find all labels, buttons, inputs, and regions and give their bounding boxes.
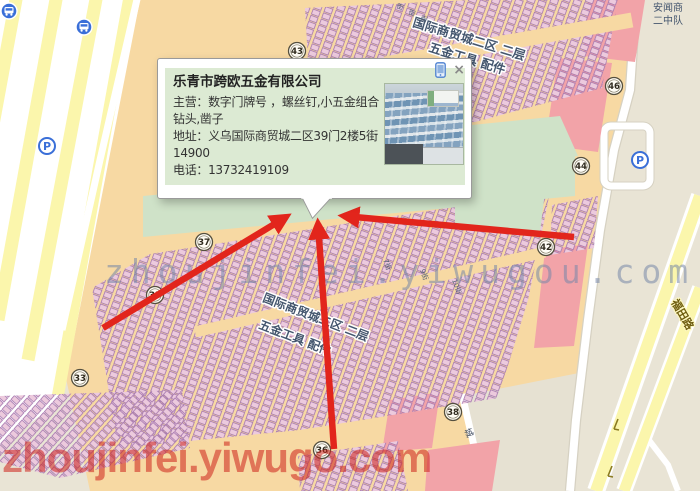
address-line: 地址：义乌国际商贸城二区39门2楼5街 14900 (173, 128, 387, 162)
close-icon[interactable]: × (453, 63, 465, 77)
company-details: 主营：数字门牌号 ，螺丝钉,小五金组合钻头,凿子 地址：义乌国际商贸城二区39门… (173, 94, 387, 179)
info-window-panel: 乐青市跨欧五金有限公司 主营：数字门牌号 ，螺丝钉,小五金组合钻头,凿子 地址：… (165, 68, 465, 185)
mobile-phone-icon[interactable] (435, 62, 446, 78)
info-window-tail (295, 196, 341, 222)
shop-shadow (385, 144, 423, 164)
shop-sign (427, 90, 459, 107)
red-arrow-center (318, 224, 334, 449)
phone-line: 电话：13732419109 (173, 162, 387, 179)
red-arrow-left (103, 217, 286, 328)
company-name: 乐青市跨欧五金有限公司 (173, 70, 322, 90)
red-arrow-right (344, 216, 574, 237)
shop-photo-thumbnail[interactable] (384, 83, 464, 165)
shop-counter (417, 147, 463, 164)
info-window: 乐青市跨欧五金有限公司 主营：数字门牌号 ，螺丝钉,小五金组合钻头,凿子 地址：… (157, 58, 472, 199)
map-screenshot: 国际商贸城二区 二层 五金工具 配件 国际商贸城二区 二层 五金工具 配件 安闻… (0, 0, 700, 491)
watermark-bottom: zhoujinfei.yiwugo.com (2, 434, 431, 482)
main-products-line: 主营：数字门牌号 ，螺丝钉,小五金组合钻头,凿子 (173, 94, 387, 128)
